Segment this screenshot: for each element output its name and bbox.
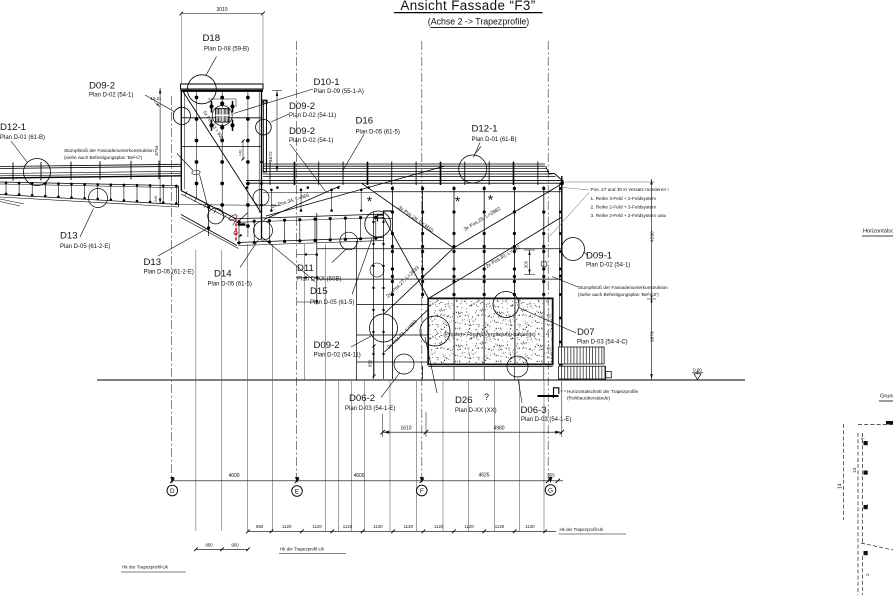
svg-text:Plan D-05 (61-2-E): Plan D-05 (61-2-E) [60,244,110,250]
svg-text:*: * [367,193,373,209]
svg-text:Hk der Trapezprofil-Uk: Hk der Trapezprofil-Uk [280,547,325,552]
svg-text:D13: D13 [60,231,78,242]
svg-text:7: 7 [861,437,866,440]
svg-text:(Achse 2 -> Trapezprofile): (Achse 2 -> Trapezprofile) [428,17,530,27]
svg-text:(Rohbauüberstände): (Rohbauüberstände) [567,396,610,401]
svg-text:(Pfosten- Riegel Verglasung ba: (Pfosten- Riegel Verglasung bauseits) [443,332,535,338]
svg-text:Plan D-05 (61-5): Plan D-05 (61-5) [310,300,354,306]
svg-text:1120: 1120 [495,524,505,529]
svg-text:Plan D-03 (54-1-E): Plan D-03 (54-1-E) [521,417,571,423]
svg-text:D11: D11 [297,263,314,274]
svg-text:13: 13 [852,467,857,473]
svg-text:Plan D-01 (61-B): Plan D-01 (61-B) [472,137,517,143]
svg-text:Plan D-03 (54-4-C): Plan D-03 (54-4-C) [577,340,628,346]
svg-text:D09-2: D09-2 [89,81,115,92]
svg-text:1120: 1120 [312,524,322,529]
svg-text:D09-2: D09-2 [314,340,340,351]
svg-text:10,21: 10,21 [151,96,163,101]
svg-text:Plan D-02 (54-11): Plan D-02 (54-11) [314,353,361,359]
svg-text:D16: D16 [356,116,374,127]
svg-text:1120: 1120 [464,524,474,529]
svg-text:≈40: ≈40 [239,150,243,156]
svg-text:D12-1: D12-1 [0,122,26,133]
svg-text:4980: 4980 [493,426,504,432]
svg-text:1120: 1120 [404,524,414,529]
svg-text:D09-1: D09-1 [586,251,612,262]
svg-text:Pos. 27 und 30 in Versatz mont: Pos. 27 und 30 in Versatz montieren ! [591,187,669,192]
svg-text:1610: 1610 [400,425,411,431]
svg-text:1. Reihe 3-Feld + 2-Feldsystem: 1. Reihe 3-Feld + 2-Feldsystem [591,196,657,201]
svg-text:Plan D-02 (54-1): Plan D-02 (54-1) [586,263,630,269]
svg-text:D18: D18 [203,33,221,44]
svg-text:950: 950 [205,542,213,547]
svg-text:3010: 3010 [216,7,227,13]
svg-text:F: F [420,488,424,495]
svg-text:D09-2: D09-2 [289,126,315,137]
svg-text:4672: 4672 [268,151,274,162]
svg-text:Hk der Trapezprofil-Uk: Hk der Trapezprofil-Uk [122,565,169,570]
svg-text:Plan D-05 (61-5): Plan D-05 (61-5) [208,282,252,288]
svg-text:305: 305 [524,260,529,268]
svg-text:Plan D-02 (54-11): Plan D-02 (54-11) [289,113,336,119]
svg-text:(siehe auch Befestigungsplan ': (siehe auch Befestigungsplan 'Bef-Ü2') [578,291,659,297]
svg-text:Plan D-01 (61-B): Plan D-01 (61-B) [0,135,45,141]
svg-text:1120: 1120 [373,524,383,529]
svg-text:355: 355 [547,473,555,478]
svg-text:3. Reihe 3-Feld + 2-Feldsystem: 3. Reihe 3-Feld + 2-Feldsystem usw. [591,213,667,218]
svg-text:4600: 4600 [228,473,239,479]
svg-text:1120: 1120 [343,524,353,529]
svg-text:1120: 1120 [282,524,292,529]
svg-text:D: D [170,488,175,495]
svg-text:D15: D15 [310,286,328,297]
svg-text:2879: 2879 [650,331,656,342]
svg-text:3754: 3754 [154,145,160,156]
svg-text:D12-1: D12-1 [472,124,498,135]
svg-text:Plan D-XX (60B): Plan D-XX (60B) [297,277,341,283]
svg-text:650: 650 [368,359,373,367]
svg-text:1120: 1120 [525,524,535,529]
svg-text:D10-1: D10-1 [314,77,340,88]
svg-text:Grundriss: Grundriss [880,394,893,400]
svg-text:2. Reihe 2-Feld + 3-Feldsystem: 2. Reihe 2-Feld + 3-Feldsystem [591,204,657,209]
svg-text:*: * [455,193,461,209]
svg-text:4290: 4290 [650,231,656,242]
svg-text:E: E [295,489,299,496]
svg-text:G: G [548,488,553,495]
svg-text:2: 2 [865,573,870,576]
svg-text:Plan D-02 (54-1): Plan D-02 (54-1) [89,93,133,99]
svg-text:Plan D-08 (59-B): Plan D-08 (59-B) [204,47,249,53]
svg-text:4600: 4600 [353,473,364,479]
svg-text:D06-2: D06-2 [349,393,375,404]
svg-text:(siehe auch Befestigungsplan ': (siehe auch Befestigungsplan 'Bef-Ü') [64,154,143,160]
svg-text:4625: 4625 [478,473,489,479]
svg-text:Stumpfstoß der Fassadenunterko: Stumpfstoß der Fassadenunterkonstruktion [578,285,668,290]
svg-text:D26: D26 [455,395,473,406]
svg-text:850: 850 [256,524,264,529]
svg-text:D07: D07 [577,327,595,338]
svg-text:Plan D-05 (61-2-E): Plan D-05 (61-2-E) [144,270,194,276]
svg-text:240: 240 [154,196,158,202]
svg-text:Plan D-05 (61-5): Plan D-05 (61-5) [356,130,400,136]
svg-text:*: * [488,192,494,208]
svg-text:Stumpfstoß der Fassadenunterko: Stumpfstoß der Fassadenunterkonstruktion [64,148,154,153]
svg-text:1120: 1120 [434,524,444,529]
svg-text:?: ? [484,392,489,402]
svg-text:14: 14 [838,483,844,489]
svg-text:D06-3: D06-3 [521,405,547,416]
svg-text:Hk der Trapezprofil-Uk: Hk der Trapezprofil-Uk [560,527,605,532]
svg-text:D09-2: D09-2 [289,101,315,112]
svg-text:D13: D13 [144,257,162,268]
svg-text:Horizontalschnitt der Trapezpr: Horizontalschnitt der Trapezprofile [567,389,639,394]
svg-text:Plan D-03 (54-1-E): Plan D-03 (54-1-E) [345,406,395,412]
svg-text:Horizontalschnitt der: Horizontalschnitt der [863,229,893,235]
svg-text:950: 950 [231,542,239,547]
svg-text:Plan D-02 (54-1): Plan D-02 (54-1) [289,138,333,144]
svg-text:Plan D-09 (55-1-A): Plan D-09 (55-1-A) [314,89,364,95]
svg-text:D14: D14 [214,269,232,280]
svg-text:Ansicht Fassade “F3”: Ansicht Fassade “F3” [400,0,535,13]
svg-text:Plan D-XX (XX): Plan D-XX (XX) [455,408,497,414]
